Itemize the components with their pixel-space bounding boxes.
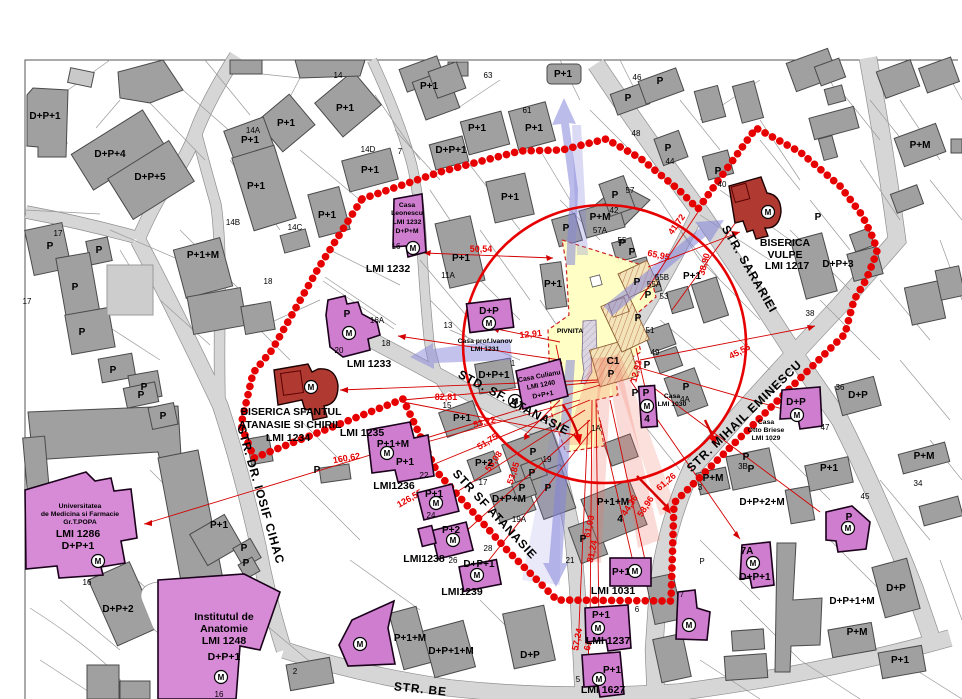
svg-text:17: 17 — [23, 297, 32, 306]
svg-text:15: 15 — [443, 401, 452, 410]
svg-text:38: 38 — [806, 309, 815, 318]
svg-text:P+1+M: P+1+M — [187, 250, 219, 261]
svg-text:40: 40 — [718, 180, 727, 189]
svg-text:17: 17 — [54, 229, 63, 238]
svg-text:P: P — [683, 382, 690, 393]
svg-text:61: 61 — [523, 106, 532, 115]
svg-text:D+P: D+P — [848, 390, 868, 401]
svg-text:14C: 14C — [288, 223, 303, 232]
svg-text:36: 36 — [836, 383, 845, 392]
svg-text:P+1+M: P+1+M — [597, 497, 629, 508]
svg-text:16A: 16A — [370, 316, 385, 325]
svg-text:Casa: Casa — [758, 419, 774, 426]
svg-text:P+1: P+1 — [396, 457, 415, 468]
svg-text:D+P+1: D+P+1 — [478, 370, 510, 381]
svg-text:D+P: D+P — [886, 583, 906, 594]
svg-text:P: P — [96, 245, 103, 256]
svg-text:P+1: P+1 — [210, 520, 229, 531]
svg-text:49: 49 — [651, 348, 660, 357]
svg-text:2: 2 — [293, 667, 298, 676]
svg-text:18: 18 — [264, 277, 273, 286]
svg-text:34: 34 — [914, 479, 923, 488]
svg-text:D+P+M: D+P+M — [395, 228, 418, 235]
svg-text:LMI 1231: LMI 1231 — [471, 346, 500, 353]
svg-text:21: 21 — [566, 556, 575, 565]
svg-text:D+P+1: D+P+1 — [208, 651, 241, 663]
svg-text:P+M: P+M — [847, 627, 868, 638]
svg-text:53: 53 — [660, 292, 669, 301]
svg-text:D+P+1: D+P+1 — [62, 540, 95, 552]
svg-text:PIVNITA: PIVNITA — [557, 328, 583, 335]
svg-text:Casa prof.Ivanov: Casa prof.Ivanov — [458, 338, 513, 345]
svg-text:P: P — [241, 543, 248, 554]
svg-text:26: 26 — [449, 556, 458, 565]
svg-text:BISERICA: BISERICA — [760, 237, 811, 249]
svg-text:57A: 57A — [593, 226, 608, 235]
svg-text:P: P — [138, 390, 145, 401]
svg-text:M: M — [750, 559, 757, 568]
svg-text:20: 20 — [335, 346, 344, 355]
svg-text:P: P — [644, 360, 651, 371]
svg-text:M: M — [644, 402, 651, 411]
svg-text:P+1: P+1 — [468, 123, 487, 134]
svg-text:M: M — [218, 673, 225, 682]
svg-text:1A: 1A — [591, 424, 601, 433]
svg-text:47: 47 — [821, 423, 830, 432]
svg-text:P+1: P+1 — [544, 279, 563, 290]
svg-text:P+M: P+M — [590, 212, 611, 223]
svg-text:Leonescu: Leonescu — [391, 210, 423, 217]
svg-text:P+1: P+1 — [241, 135, 260, 146]
svg-text:LMI 1234: LMI 1234 — [266, 432, 311, 444]
svg-text:P+1: P+1 — [683, 271, 702, 282]
svg-text:D+P: D+P — [520, 650, 540, 661]
svg-text:22: 22 — [420, 471, 429, 480]
svg-text:LMI 1286: LMI 1286 — [56, 528, 101, 540]
svg-text:M: M — [596, 675, 603, 684]
svg-text:P+2: P+2 — [442, 525, 461, 536]
svg-text:P+1: P+1 — [425, 489, 444, 500]
svg-text:P+1: P+1 — [525, 123, 544, 134]
svg-text:14A: 14A — [246, 126, 261, 135]
svg-text:P+1: P+1 — [247, 181, 266, 192]
svg-text:24: 24 — [427, 511, 436, 520]
svg-text:P+1: P+1 — [820, 463, 839, 474]
svg-text:P: P — [580, 534, 587, 545]
svg-text:Casa: Casa — [399, 202, 415, 209]
svg-text:D+P+1+M: D+P+1+M — [829, 596, 874, 607]
svg-text:P: P — [72, 282, 79, 293]
svg-text:D+P+1: D+P+1 — [463, 559, 495, 570]
svg-text:P+1: P+1 — [318, 210, 337, 221]
svg-text:D+P+3: D+P+3 — [822, 259, 854, 270]
svg-text:P: P — [643, 388, 650, 399]
svg-text:16: 16 — [392, 242, 401, 251]
svg-text:LMI 1233: LMI 1233 — [347, 358, 392, 370]
svg-text:P+1: P+1 — [612, 567, 631, 578]
svg-text:Institutul de: Institutul de — [194, 611, 254, 623]
svg-text:P+1+M: P+1+M — [377, 439, 409, 450]
svg-text:P+1: P+1 — [452, 253, 471, 264]
svg-text:LMI 1217: LMI 1217 — [765, 260, 810, 272]
svg-text:11A: 11A — [441, 271, 455, 280]
svg-text:M: M — [308, 383, 315, 392]
svg-text:P+M: P+M — [703, 473, 724, 484]
svg-text:28: 28 — [484, 544, 493, 553]
svg-text:14: 14 — [334, 71, 343, 80]
svg-text:7: 7 — [398, 147, 403, 156]
svg-text:M: M — [632, 567, 639, 576]
svg-text:50,54: 50,54 — [470, 244, 493, 254]
svg-text:M: M — [384, 449, 391, 458]
svg-text:P: P — [846, 512, 853, 523]
svg-text:44: 44 — [666, 157, 675, 166]
svg-text:P: P — [634, 277, 641, 288]
svg-text:3: 3 — [698, 483, 703, 492]
svg-text:P+1: P+1 — [453, 413, 472, 424]
svg-text:M: M — [450, 536, 457, 545]
svg-text:LMI 1232: LMI 1232 — [366, 263, 411, 275]
svg-text:D+P+2+M: D+P+2+M — [739, 497, 784, 508]
svg-text:P+1: P+1 — [277, 118, 296, 129]
svg-text:P: P — [715, 166, 722, 177]
svg-text:P+M: P+M — [910, 140, 931, 151]
svg-text:P+1: P+1 — [554, 69, 573, 80]
svg-text:P: P — [612, 190, 619, 201]
svg-text:51: 51 — [646, 326, 655, 335]
svg-text:D+P+M: D+P+M — [492, 494, 526, 505]
svg-text:de Medicina si Farmacie: de Medicina si Farmacie — [41, 511, 119, 518]
svg-text:LMI 1232: LMI 1232 — [393, 219, 422, 226]
svg-text:C1: C1 — [607, 356, 620, 367]
svg-text:45: 45 — [861, 492, 870, 501]
svg-text:55: 55 — [618, 236, 627, 245]
svg-text:Universitatea: Universitatea — [59, 503, 102, 510]
svg-text:6: 6 — [635, 605, 640, 614]
svg-text:M: M — [765, 208, 772, 217]
svg-text:19A: 19A — [512, 515, 527, 524]
svg-text:LMI 1248: LMI 1248 — [202, 635, 247, 647]
svg-text:P: P — [748, 464, 755, 475]
svg-text:5: 5 — [576, 675, 581, 684]
svg-text:14B: 14B — [226, 218, 240, 227]
svg-text:P+2: P+2 — [475, 458, 494, 469]
svg-text:P: P — [635, 313, 642, 324]
svg-text:P+1: P+1 — [891, 655, 910, 666]
svg-text:M: M — [357, 640, 364, 649]
svg-text:P: P — [344, 309, 351, 320]
svg-text:LMI1238: LMI1238 — [403, 553, 445, 565]
svg-text:D+P: D+P — [479, 306, 499, 317]
svg-text:P: P — [110, 365, 117, 376]
svg-text:P: P — [563, 223, 570, 234]
svg-text:P: P — [545, 483, 552, 494]
svg-text:P+1: P+1 — [336, 103, 355, 114]
svg-text:57: 57 — [626, 186, 635, 195]
svg-text:LMI1236: LMI1236 — [373, 480, 415, 492]
svg-text:46: 46 — [633, 73, 642, 82]
svg-text:P: P — [699, 557, 704, 566]
svg-text:BISERICA SFANTUL: BISERICA SFANTUL — [240, 406, 342, 418]
svg-text:M: M — [346, 329, 353, 338]
svg-text:D+P+4: D+P+4 — [94, 149, 126, 160]
svg-text:7A: 7A — [741, 546, 754, 557]
svg-text:Anatomie: Anatomie — [200, 623, 248, 635]
svg-text:P: P — [629, 247, 636, 258]
svg-text:D+P+1: D+P+1 — [29, 111, 61, 122]
svg-text:D+P+2: D+P+2 — [102, 604, 134, 615]
svg-text:P+M: P+M — [914, 451, 935, 462]
svg-text:D+P+1+M: D+P+1+M — [428, 646, 473, 657]
svg-text:55A: 55A — [647, 280, 662, 289]
svg-text:D+P: D+P — [786, 397, 806, 408]
svg-text:M: M — [845, 524, 852, 533]
svg-text:LMI 1235: LMI 1235 — [340, 427, 385, 439]
svg-text:P: P — [519, 483, 526, 494]
svg-text:P: P — [160, 411, 167, 422]
svg-text:P+1: P+1 — [603, 665, 622, 676]
svg-text:P: P — [815, 212, 822, 223]
svg-text:LMI 1031: LMI 1031 — [591, 585, 636, 597]
svg-text:3B: 3B — [738, 462, 748, 471]
svg-text:M: M — [595, 624, 602, 633]
svg-text:LMI 1627: LMI 1627 — [581, 684, 626, 696]
svg-text:D+P+1: D+P+1 — [435, 145, 467, 156]
svg-text:LMI 1237: LMI 1237 — [586, 635, 631, 647]
svg-text:LMI1239: LMI1239 — [441, 586, 483, 598]
svg-text:14D: 14D — [361, 145, 376, 154]
svg-text:M: M — [410, 244, 417, 253]
svg-text:P: P — [243, 558, 250, 569]
svg-text:17: 17 — [479, 478, 488, 487]
svg-text:48: 48 — [632, 129, 641, 138]
svg-text:P+1: P+1 — [420, 81, 439, 92]
svg-text:42: 42 — [610, 206, 619, 215]
svg-text:D+P+5: D+P+5 — [134, 172, 166, 183]
svg-text:13: 13 — [444, 321, 453, 330]
svg-text:M: M — [474, 571, 481, 580]
svg-text:P+1+M: P+1+M — [394, 633, 426, 644]
svg-text:P+1: P+1 — [592, 610, 611, 621]
svg-text:P+1: P+1 — [501, 192, 520, 203]
svg-text:P+1: P+1 — [361, 165, 380, 176]
svg-text:4A: 4A — [680, 395, 690, 404]
svg-text:M: M — [686, 621, 693, 630]
svg-text:1: 1 — [511, 359, 516, 368]
svg-text:P: P — [529, 468, 536, 479]
svg-text:19: 19 — [543, 455, 552, 464]
svg-text:P: P — [632, 388, 639, 399]
svg-text:16: 16 — [215, 690, 224, 699]
svg-text:M: M — [486, 319, 493, 328]
svg-text:M: M — [433, 499, 440, 508]
svg-text:M: M — [95, 557, 102, 566]
svg-text:P: P — [665, 143, 672, 154]
svg-text:D+P+1: D+P+1 — [739, 572, 771, 583]
svg-text:7: 7 — [680, 590, 685, 599]
svg-text:P: P — [47, 241, 54, 252]
svg-text:ATANASIE SI CHIRIL: ATANASIE SI CHIRIL — [239, 419, 342, 431]
svg-text:4: 4 — [644, 414, 650, 425]
svg-text:16: 16 — [83, 578, 92, 587]
svg-text:M: M — [794, 411, 801, 420]
svg-text:P: P — [657, 76, 664, 87]
svg-text:P: P — [79, 327, 86, 338]
svg-text:Gr.T.POPA: Gr.T.POPA — [63, 519, 97, 526]
svg-text:18: 18 — [382, 339, 391, 348]
svg-text:LMI 1029: LMI 1029 — [752, 435, 781, 442]
svg-text:63: 63 — [484, 71, 493, 80]
svg-text:P: P — [530, 447, 537, 458]
svg-text:P: P — [608, 369, 615, 380]
svg-text:P: P — [314, 465, 321, 476]
svg-text:Casa: Casa — [664, 393, 680, 400]
svg-text:4: 4 — [617, 514, 623, 525]
svg-text:P: P — [625, 93, 632, 104]
svg-text:Otto Briese: Otto Briese — [748, 427, 785, 434]
svg-text:P: P — [645, 290, 652, 301]
